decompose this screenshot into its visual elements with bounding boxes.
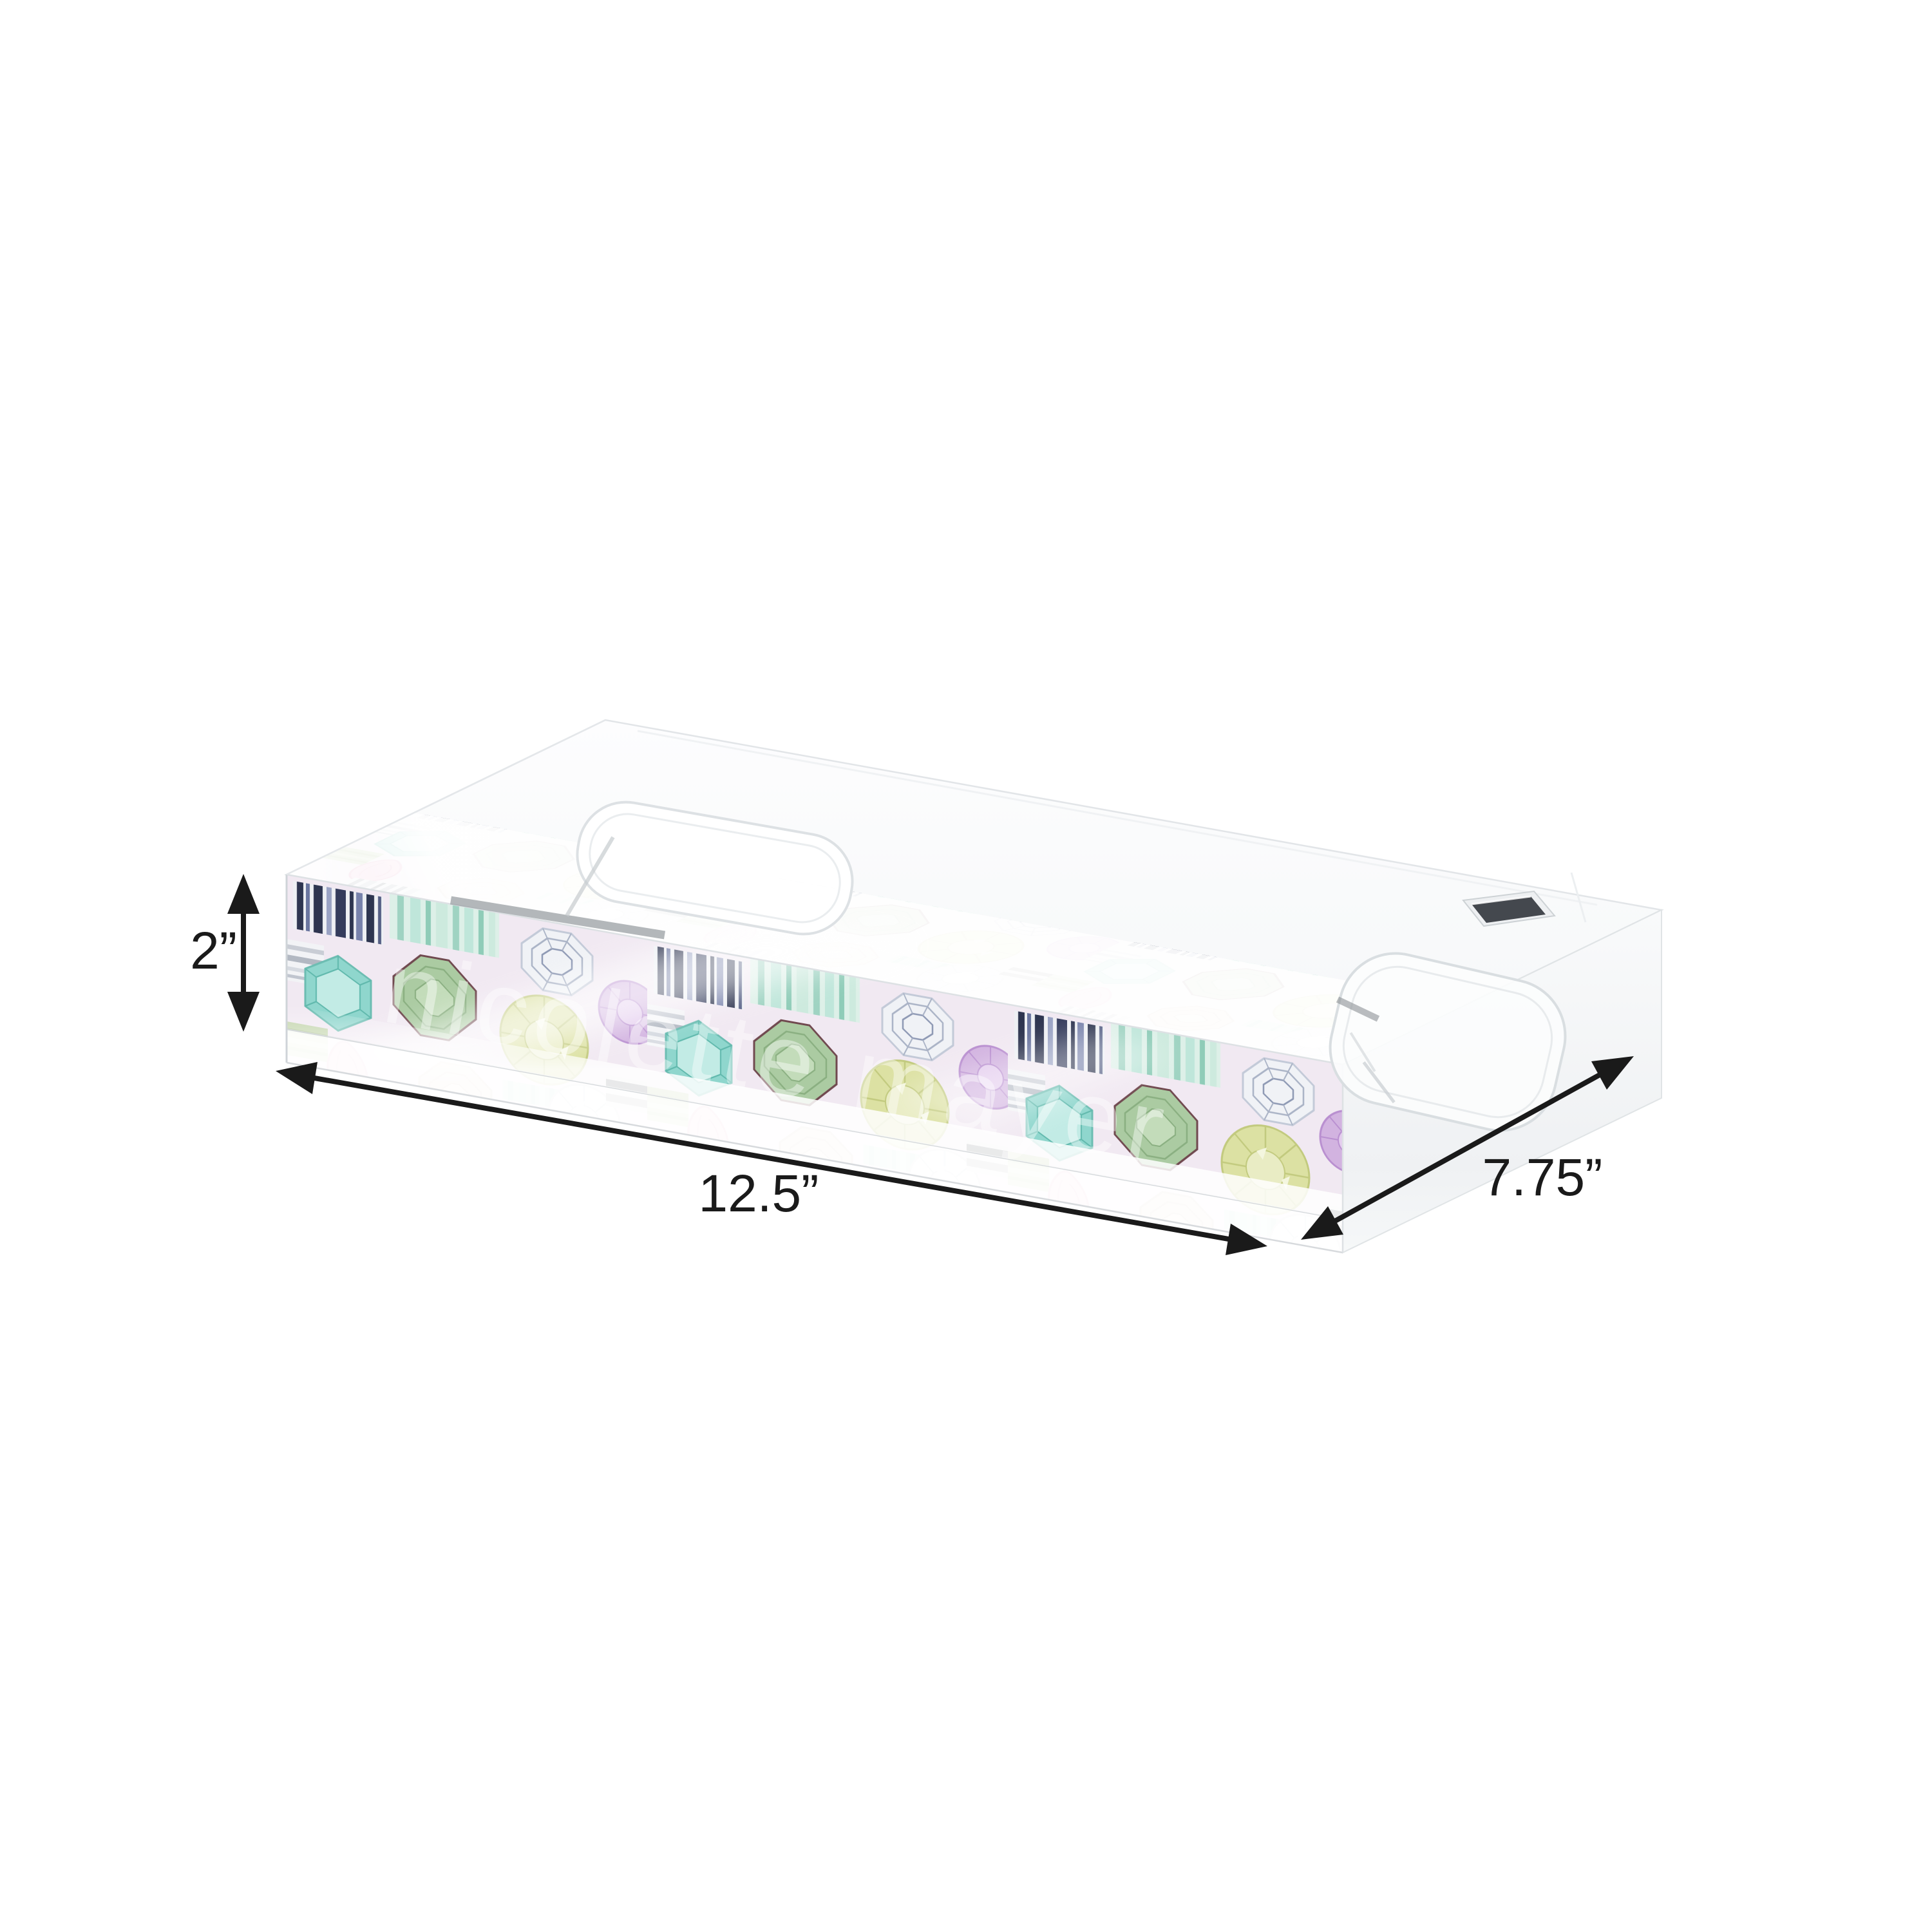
acrylic-tray: nicolette mayer: [287, 720, 1662, 1253]
height-dimension-label: 2”: [190, 922, 237, 980]
depth-dimension-label: 7.75”: [1482, 1148, 1603, 1207]
height-arrowhead-top: [227, 874, 260, 914]
length-dimension-label: 12.5”: [699, 1164, 819, 1223]
height-arrowhead-bottom: [227, 992, 260, 1032]
product-dimension-diagram: nicolette mayer: [0, 0, 1932, 1932]
length-arrowhead-left: [276, 1062, 317, 1094]
height-dimension: 2”: [190, 874, 260, 1032]
